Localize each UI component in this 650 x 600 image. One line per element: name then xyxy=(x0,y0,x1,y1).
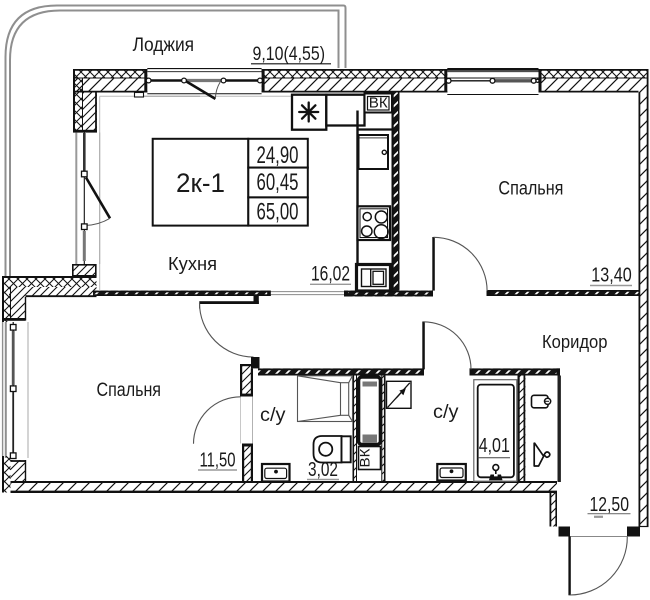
svg-text:9,10(4,55): 9,10(4,55) xyxy=(253,44,326,65)
svg-text:Кухня: Кухня xyxy=(168,254,217,274)
svg-text:с/у: с/у xyxy=(433,401,459,423)
svg-text:с/у: с/у xyxy=(260,404,286,426)
svg-text:4,01: 4,01 xyxy=(479,435,510,457)
svg-text:ВК: ВК xyxy=(369,96,389,112)
svg-text:Коридор: Коридор xyxy=(542,331,608,352)
svg-text:13,40: 13,40 xyxy=(591,265,631,287)
svg-text:60,45: 60,45 xyxy=(257,169,299,196)
svg-text:ВК: ВК xyxy=(357,448,373,468)
svg-text:Лоджия: Лоджия xyxy=(133,35,195,56)
svg-text:16,02: 16,02 xyxy=(311,263,350,286)
svg-text:2к-1: 2к-1 xyxy=(176,168,225,198)
svg-text:Спальня: Спальня xyxy=(97,380,162,401)
svg-text:3,02: 3,02 xyxy=(308,459,338,481)
svg-text:Спальня: Спальня xyxy=(498,179,563,200)
svg-text:65,00: 65,00 xyxy=(257,198,299,225)
svg-text:24,90: 24,90 xyxy=(257,142,299,169)
svg-text:11,50: 11,50 xyxy=(200,450,236,472)
svg-text:12,50: 12,50 xyxy=(590,494,630,516)
